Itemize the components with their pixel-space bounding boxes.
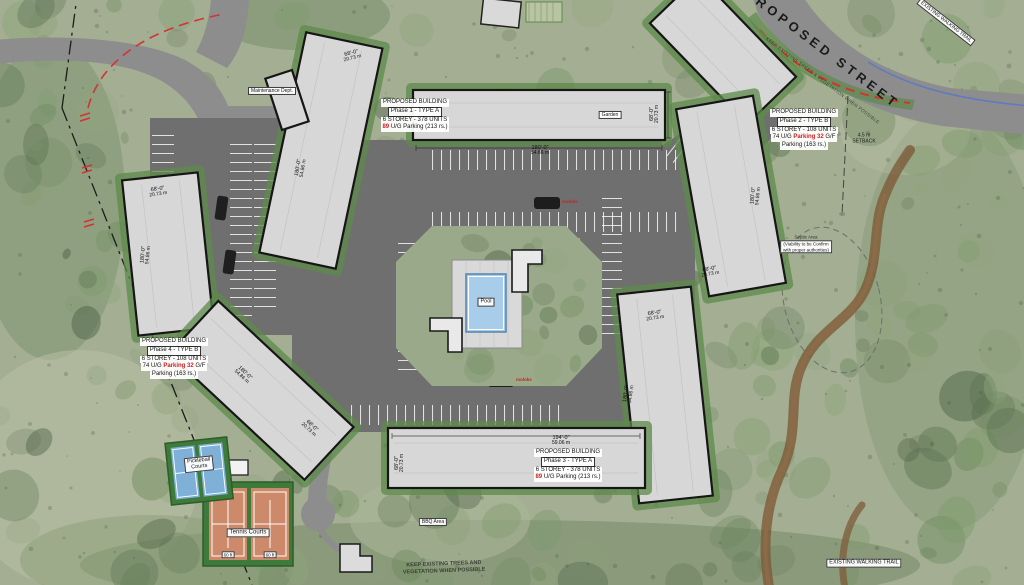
label-line: 6 STOREY - 378 UNITS (381, 117, 448, 125)
building-label-phase4: PROPOSED BUILDING Phase 4 - TYPE B 6 STO… (127, 338, 221, 379)
label-line: Phase 1 - TYPE A (388, 107, 441, 117)
dim-phase1-width: 68'-0"20.73 m (649, 105, 661, 123)
building-label-phase2: PROPOSED BUILDING Phase 2 - TYPE B 6 STO… (757, 109, 851, 150)
setback-label: 4.5 mSETBACK (852, 133, 875, 145)
cul-de-sac (301, 497, 335, 531)
dim-phase4-length: 180'-0"54.86 m (139, 245, 152, 264)
site-plan-stage: PROPOSED STREET KEEP EXISTING TREES & VE… (0, 0, 1024, 585)
label-line: 6 STOREY - 108 UNITS (140, 356, 207, 364)
court-dim-label: 60 ft (264, 551, 277, 558)
keep-trees-note: KEEP EXISTING TREES ANDVEGETATION WHEN P… (402, 560, 485, 577)
label-line: Parking (163 rs.) (150, 371, 197, 379)
pickleball-courts-label: PickleballCourts (184, 455, 215, 473)
garden-plots (526, 2, 562, 22)
pool-label: Pool (477, 298, 494, 307)
label-line: 6 STOREY - 108 UNITS (770, 127, 837, 135)
label-line: Parking (163 rs.) (780, 142, 827, 150)
dim-phase2-length: 180'-0"54.86 m (749, 186, 762, 205)
label-line: Phase 2 - TYPE B (777, 117, 831, 127)
dim-phase1-length: 180'-0"54.86 m (531, 145, 549, 157)
dim-phase3-width: 68'-0"20.73 m (394, 454, 406, 472)
label-line: 6 STOREY - 378 UNITS (534, 467, 601, 475)
septic-note: Septic Area (Viability to be Confirmwith… (780, 234, 832, 253)
court-dim-label: 60 ft (222, 551, 235, 558)
label-line: PROPOSED BUILDING (381, 99, 448, 107)
maintenance-label: Maintenance Dept. (248, 87, 296, 95)
bbq-area-label: BBQ Area (419, 518, 447, 526)
label-line: Phase 3 - TYPE A (541, 457, 594, 467)
dim-phase3-length: 194'-0"59.06 m (552, 435, 570, 447)
tennis-courts-label: Tennis Courts (227, 528, 270, 537)
moloks-bins-north (534, 197, 560, 209)
label-line: PROPOSED BUILDING (534, 449, 601, 457)
label-line: PROPOSED BUILDING (140, 338, 207, 346)
moloks-label-south: moloks (516, 377, 532, 382)
moloks-label-north: moloks (562, 199, 578, 204)
clubhouse (481, 0, 522, 28)
label-line: Phase 4 - TYPE B (147, 346, 201, 356)
walking-trail-label-south: EXISTING WALKING TRAIL (826, 559, 901, 568)
garden-label: Garden (599, 111, 622, 119)
label-line: PROPOSED BUILDING (770, 109, 837, 117)
building-label-phase3: PROPOSED BUILDING Phase 3 - TYPE A 6 STO… (521, 449, 615, 482)
building-label-phase1: PROPOSED BUILDING Phase 1 - TYPE A 6 STO… (368, 99, 462, 132)
